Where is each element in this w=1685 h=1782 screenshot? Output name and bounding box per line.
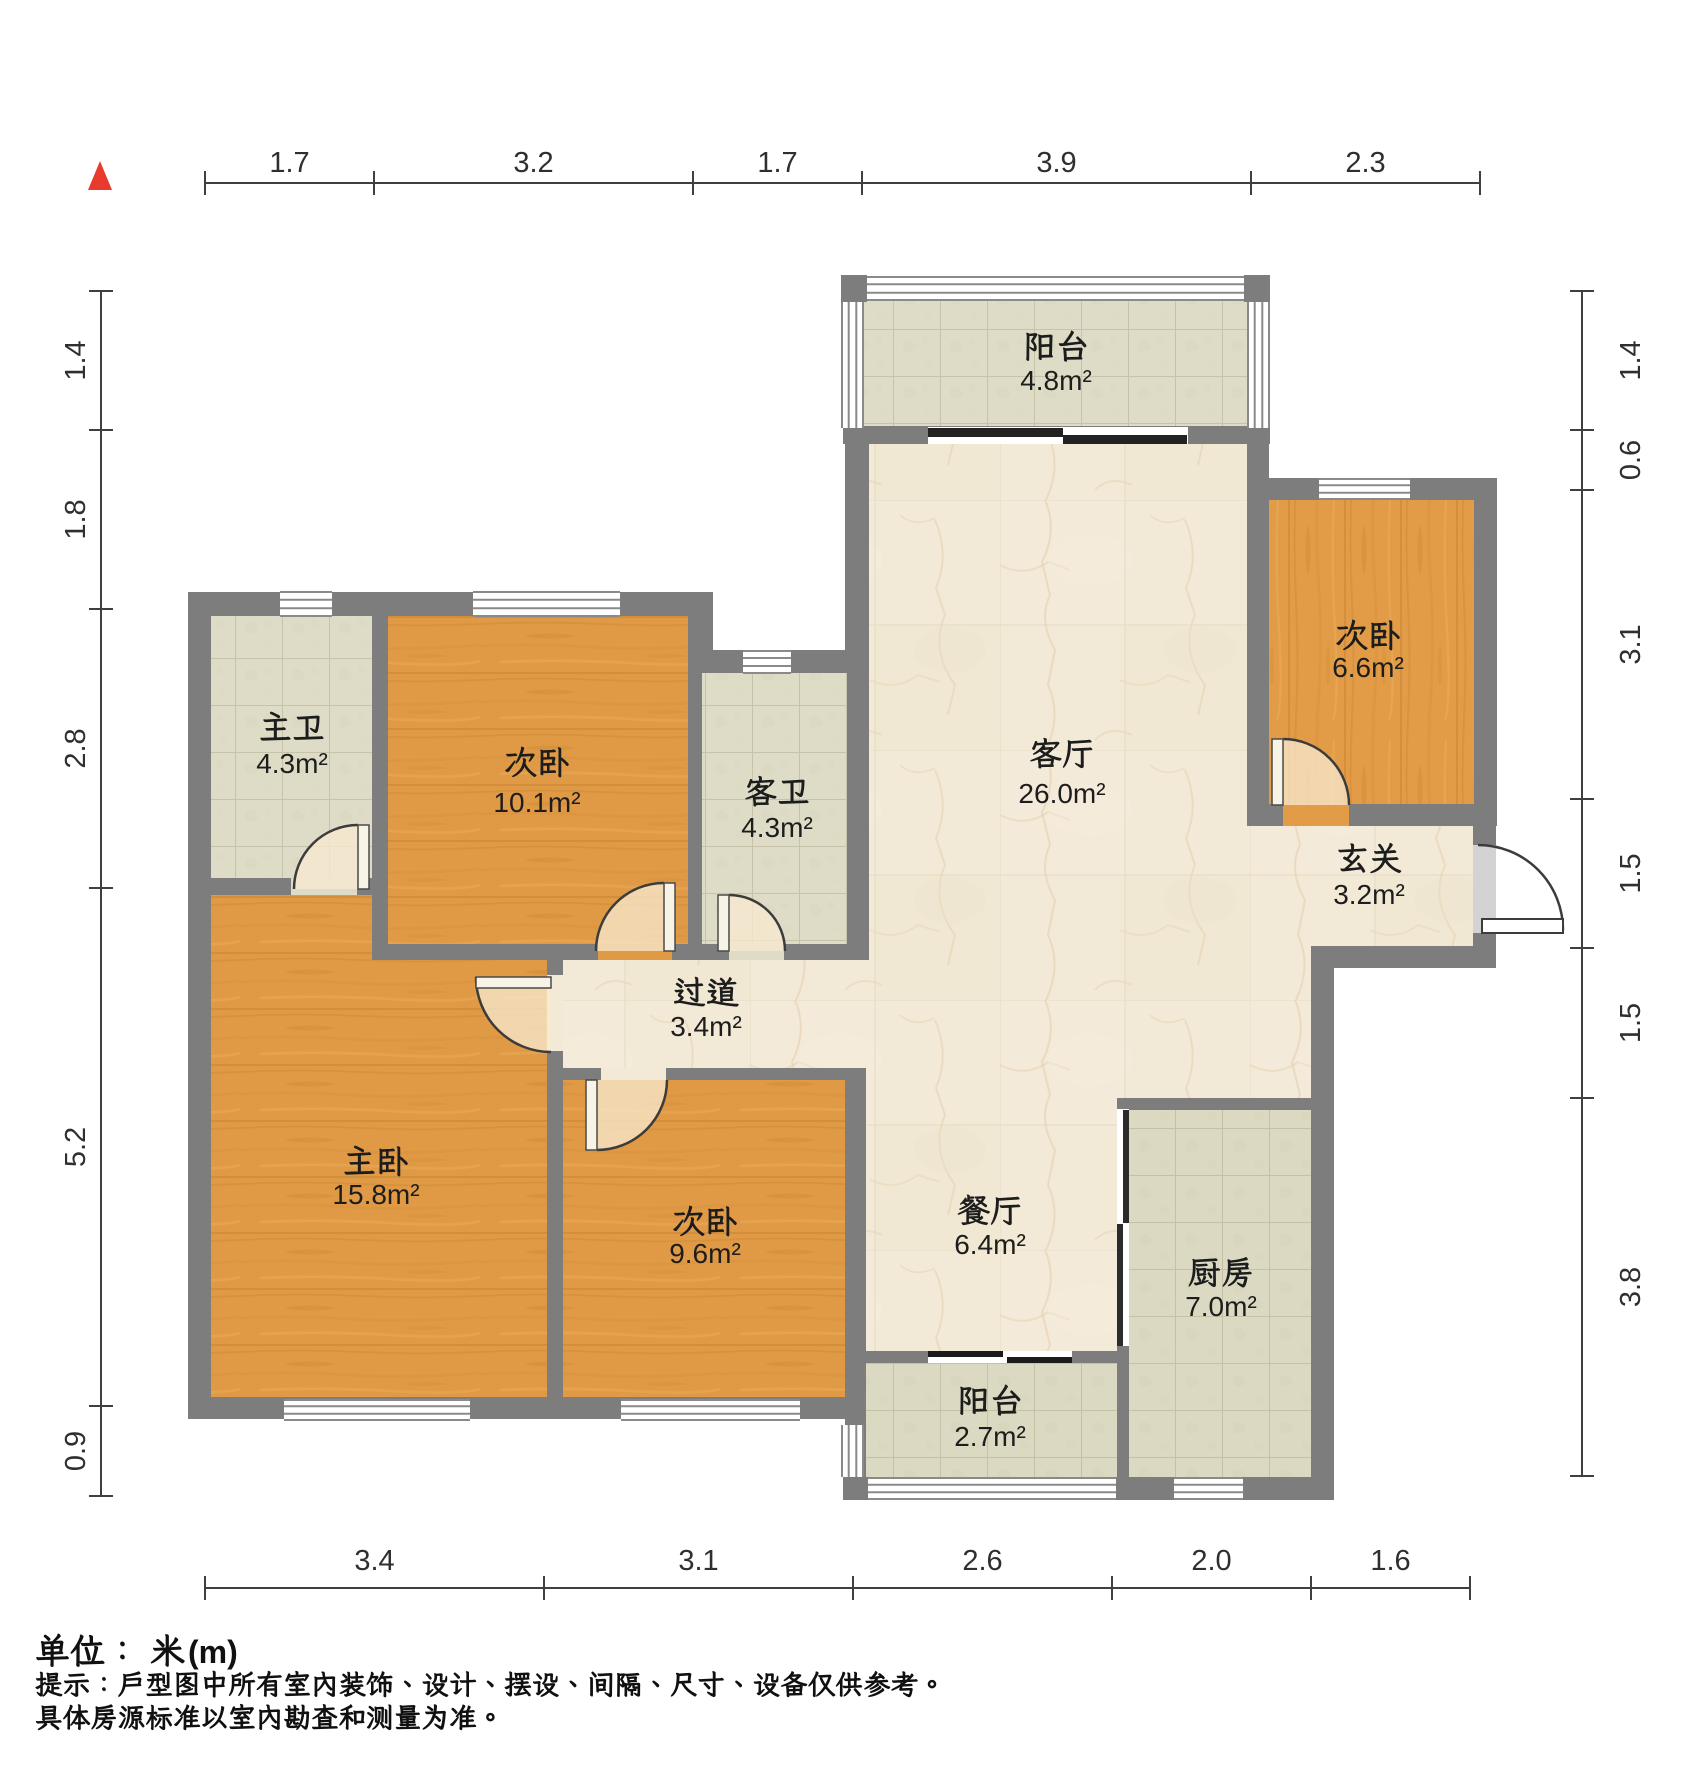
- svg-text:2.6: 2.6: [962, 1545, 1002, 1577]
- svg-text:3.8: 3.8: [1615, 1267, 1647, 1307]
- svg-text:2.8: 2.8: [60, 728, 92, 768]
- svg-text:4.3m²: 4.3m²: [256, 748, 328, 779]
- svg-text:3.4: 3.4: [354, 1545, 394, 1577]
- svg-text:1.6: 1.6: [1370, 1545, 1410, 1577]
- svg-text:2.7m²: 2.7m²: [954, 1421, 1026, 1452]
- svg-text:9.6m²: 9.6m²: [669, 1238, 741, 1269]
- svg-text:1.7: 1.7: [269, 147, 309, 179]
- svg-text:1.7: 1.7: [757, 147, 797, 179]
- svg-text:26.0m²: 26.0m²: [1018, 778, 1105, 809]
- svg-text:3.2: 3.2: [513, 147, 553, 179]
- svg-text:6.4m²: 6.4m²: [954, 1229, 1026, 1260]
- svg-text:3.1: 3.1: [1615, 624, 1647, 664]
- svg-text:1.4: 1.4: [1615, 340, 1647, 380]
- svg-text:7.0m²: 7.0m²: [1185, 1291, 1257, 1322]
- svg-text:15.8m²: 15.8m²: [332, 1179, 419, 1210]
- svg-text:3.4m²: 3.4m²: [670, 1011, 742, 1042]
- svg-text:1.4: 1.4: [60, 340, 92, 380]
- svg-text:3.2m²: 3.2m²: [1333, 879, 1405, 910]
- svg-text:0.9: 0.9: [60, 1431, 92, 1471]
- svg-text:0.6: 0.6: [1615, 440, 1647, 480]
- svg-text:6.6m²: 6.6m²: [1332, 652, 1404, 683]
- svg-text:3.9: 3.9: [1036, 147, 1076, 179]
- svg-text:4.8m²: 4.8m²: [1020, 365, 1092, 396]
- svg-text:3.1: 3.1: [678, 1545, 718, 1577]
- svg-text:2.3: 2.3: [1345, 147, 1385, 179]
- svg-text:(m): (m): [188, 1634, 238, 1670]
- svg-text:2.0: 2.0: [1191, 1545, 1231, 1577]
- svg-text:1.8: 1.8: [60, 499, 92, 539]
- svg-text:4.3m²: 4.3m²: [741, 812, 813, 843]
- svg-text:5.2: 5.2: [60, 1127, 92, 1167]
- svg-text:1.5: 1.5: [1615, 1003, 1647, 1043]
- svg-text:10.1m²: 10.1m²: [493, 787, 580, 818]
- svg-text:1.5: 1.5: [1615, 853, 1647, 893]
